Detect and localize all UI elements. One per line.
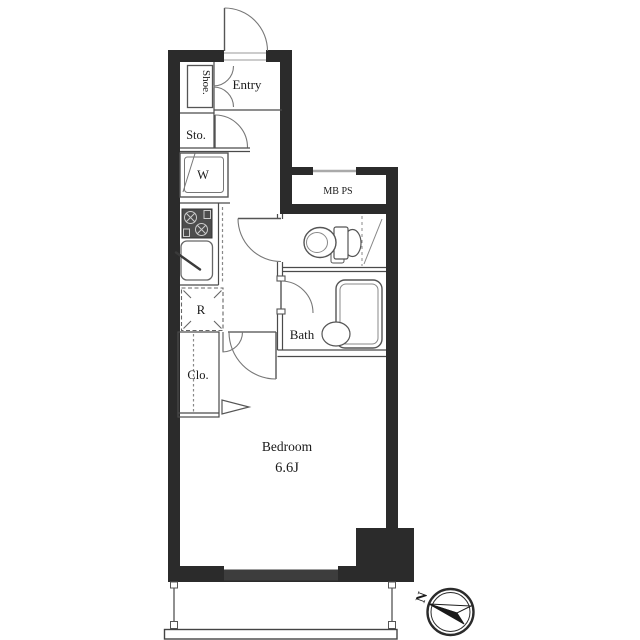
mbps-label: MB PS <box>323 186 352 197</box>
wall-mbps-left-stub <box>292 167 313 175</box>
wall-bottom-left <box>168 566 224 582</box>
storage-bottom-wall <box>180 148 250 152</box>
window-sash <box>224 570 338 581</box>
entry-door-swing <box>225 8 268 51</box>
storage-label: Sto. <box>186 128 206 142</box>
bedroom-label: Bedroom <box>262 439 313 454</box>
wall-mbps-bottom <box>280 204 398 214</box>
bath-basin <box>322 322 350 346</box>
refrigerator-label: R <box>197 302 206 317</box>
bath-room <box>322 280 382 348</box>
bath-label: Bath <box>290 327 315 342</box>
hall-door <box>215 115 248 148</box>
bath-door-jamb-bottom <box>277 309 285 314</box>
stove <box>182 209 212 238</box>
bath-door-swing <box>281 281 313 313</box>
bath-door <box>277 276 313 314</box>
toilet-bath-divider <box>283 268 387 272</box>
pillar <box>356 528 414 582</box>
toilet-fixture <box>304 227 361 263</box>
balcony-post-right-top <box>389 582 396 588</box>
washer-label: W <box>197 168 209 182</box>
balcony-post-right-foot <box>389 622 396 629</box>
floor-plan-page: N Entry Shoe. Sto. W MB PS R Bath Clo. B… <box>0 0 640 640</box>
bedroom-size-label: 6.6J <box>275 460 299 476</box>
balcony <box>165 582 398 639</box>
compass: N <box>414 589 474 635</box>
balcony-railing <box>165 630 398 640</box>
shoe-door-swing-top <box>214 66 234 86</box>
wall-left <box>168 50 180 582</box>
shoe-cabinet-label: Shoe. <box>200 70 212 95</box>
closet-label: Clo. <box>187 368 208 382</box>
window-outer-line <box>224 581 338 583</box>
closet-door-marker <box>222 400 249 414</box>
south-window <box>224 566 338 582</box>
balcony-post-left-foot <box>171 622 178 629</box>
entry-door-sill <box>224 53 266 60</box>
hall-right-wall <box>278 214 283 350</box>
balcony-post-left-top <box>171 582 178 588</box>
shoe-door-swing-bottom <box>214 87 234 107</box>
shoe-cabinet-doors <box>214 66 234 107</box>
toilet-door-swing <box>238 219 281 262</box>
kitchen-sink <box>176 241 213 280</box>
entry-door <box>224 8 268 60</box>
wall-right <box>386 167 398 582</box>
toilet-door <box>238 219 281 262</box>
window-inner-gap <box>224 566 338 570</box>
wall-top-left <box>168 50 224 62</box>
hall-door-swing <box>215 115 248 148</box>
bath-bedroom-wall <box>278 350 387 357</box>
bedroom-door-small-swing <box>223 332 243 352</box>
toilet-bowl-inner <box>307 233 328 253</box>
toilet-shelf-diagonal <box>364 219 382 264</box>
toilet-room <box>304 216 382 266</box>
bedroom-door <box>223 332 277 379</box>
bath-door-jamb-top <box>277 276 285 281</box>
entry-label: Entry <box>233 77 262 92</box>
wall-corridor-right <box>280 50 292 214</box>
floor-plan-drawing: N Entry Shoe. Sto. W MB PS R Bath Clo. B… <box>0 0 640 640</box>
bedroom-door-swing <box>229 332 276 379</box>
